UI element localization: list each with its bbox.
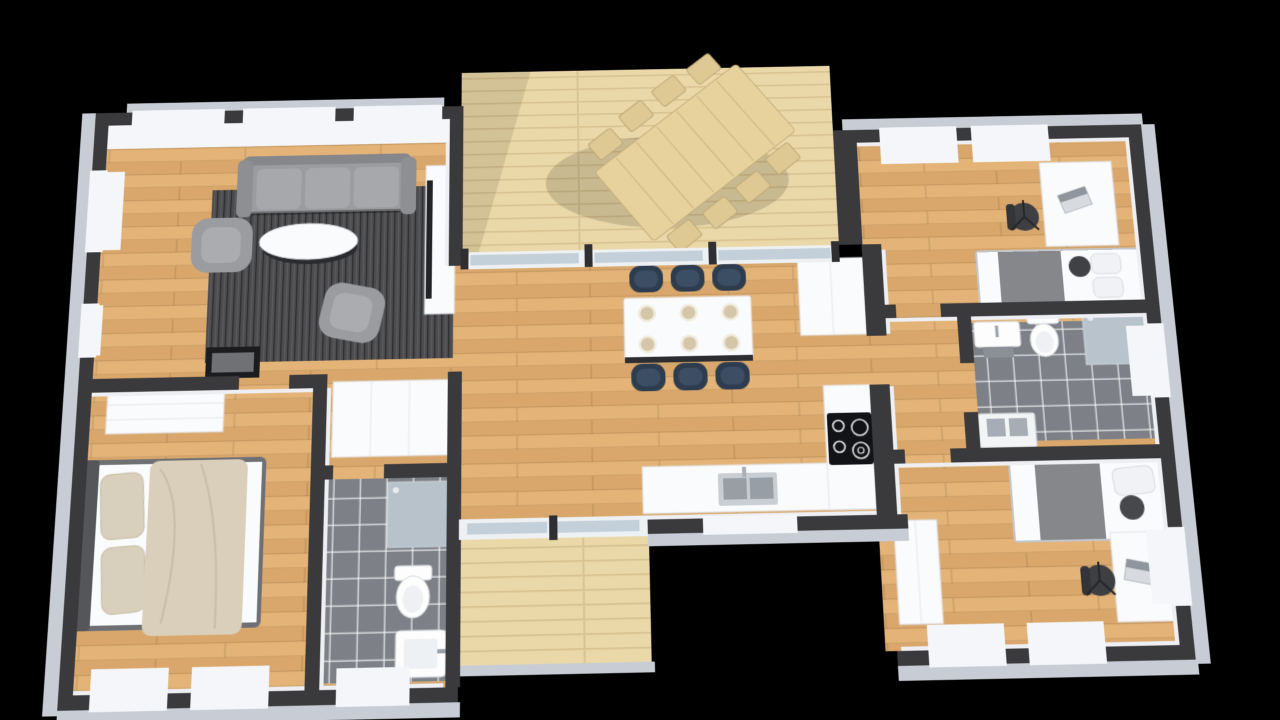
pillow xyxy=(1111,465,1156,496)
plate xyxy=(723,335,740,351)
scene-3d-tilt xyxy=(0,16,1280,720)
chair-seat xyxy=(634,270,658,288)
shower xyxy=(387,481,451,548)
window-sill xyxy=(1027,621,1106,648)
dining-chair xyxy=(670,265,704,292)
wall-bathroom1-north xyxy=(384,463,453,479)
sofa xyxy=(236,153,417,217)
laundry-sink xyxy=(986,418,1006,436)
plate xyxy=(639,306,655,322)
plate xyxy=(639,336,655,352)
sink-basin xyxy=(723,478,747,500)
sofa-armrest xyxy=(236,160,254,218)
armchair-cushion xyxy=(200,227,241,264)
floor-plan-render xyxy=(0,0,1280,720)
laundry-body xyxy=(978,413,1037,448)
blanket xyxy=(1034,461,1106,540)
glass-pane xyxy=(557,520,639,533)
dining-chairs-bottom xyxy=(631,362,750,392)
pillow xyxy=(1092,277,1124,298)
pillow xyxy=(100,472,144,541)
basin-cabinet xyxy=(983,347,1014,358)
kitchen-window-bay xyxy=(703,514,798,534)
glass-pane xyxy=(467,522,547,535)
chair-seat xyxy=(636,368,660,386)
door-post xyxy=(461,249,469,270)
chair-seat xyxy=(678,368,703,386)
chair-seat xyxy=(676,269,700,287)
basin-bowl xyxy=(404,639,438,670)
pillow xyxy=(1090,253,1121,273)
fireplace-unit xyxy=(205,346,260,378)
door-post xyxy=(708,242,717,265)
small-terrace-deck-floor xyxy=(458,534,652,668)
window-sill xyxy=(90,668,169,695)
wall-bathroom1-north xyxy=(325,465,334,479)
window-sill xyxy=(972,139,1051,162)
plate xyxy=(680,305,696,321)
window-sill xyxy=(191,666,270,693)
main-terrace xyxy=(461,40,840,268)
dining-chair xyxy=(712,264,746,291)
sink-basin xyxy=(749,477,773,499)
window-sill xyxy=(336,667,410,690)
blanket xyxy=(998,251,1066,305)
door-post xyxy=(549,515,557,540)
dining-area xyxy=(623,264,754,392)
glass-pane xyxy=(594,250,702,263)
sofa-armrest xyxy=(400,157,416,215)
single-bed xyxy=(975,247,1153,307)
small-terrace xyxy=(456,534,655,677)
plate xyxy=(681,336,697,352)
armchair xyxy=(190,217,253,273)
dining-chair xyxy=(715,362,750,390)
window-sill xyxy=(880,141,959,164)
dining-chair xyxy=(631,363,666,391)
dining-chairs-top xyxy=(629,264,746,293)
chair-seat xyxy=(720,367,745,385)
wall-bedroom2-south xyxy=(866,305,897,319)
master-bed xyxy=(64,457,267,638)
wall-living-terrace-divider xyxy=(449,106,464,266)
basin-faucet xyxy=(996,326,997,338)
sofa-cushion xyxy=(353,166,399,208)
sofa-cushion xyxy=(256,168,302,210)
plate xyxy=(722,304,738,320)
sofa-cushion xyxy=(305,167,351,209)
dining-chair xyxy=(629,265,663,292)
dining-chair xyxy=(673,363,708,391)
sink-faucet xyxy=(742,467,746,477)
pillow xyxy=(101,545,145,615)
window-sill xyxy=(927,623,1006,650)
laundry-counter xyxy=(978,413,1037,448)
door-post xyxy=(831,241,840,262)
door-post xyxy=(584,244,592,267)
chair-seat xyxy=(717,269,741,287)
glass-pane xyxy=(470,253,578,266)
duvet-throw xyxy=(141,459,248,636)
wall-bathroom2-west xyxy=(964,412,981,448)
cooktop xyxy=(827,412,874,465)
laundry-sink xyxy=(1009,418,1029,436)
wall-bedroom3-north xyxy=(874,449,905,464)
wardrobe xyxy=(331,380,449,458)
hall-closet xyxy=(331,380,449,458)
fireplace-front xyxy=(211,352,254,372)
